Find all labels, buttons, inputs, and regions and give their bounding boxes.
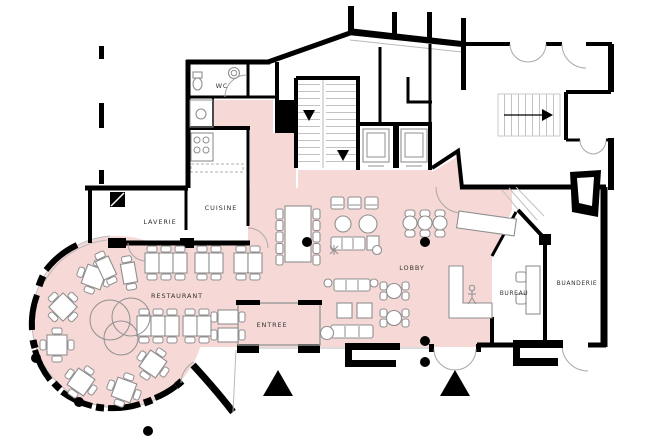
label-buanderie: BUANDERIE xyxy=(557,280,598,287)
top-door-swing xyxy=(562,44,586,68)
column-dot xyxy=(302,237,312,247)
zone-elevator-hall xyxy=(298,170,432,188)
main-staircase xyxy=(296,78,360,168)
elevators xyxy=(358,124,432,170)
floor-plan-drawing: WC LAVERIE CUISINE RESTAURANT ENTREE LOB… xyxy=(0,0,650,445)
floor-plan-canvas: WC LAVERIE CUISINE RESTAURANT ENTREE LOB… xyxy=(0,0,650,445)
wall-right-edge xyxy=(608,138,614,190)
chimney-pier xyxy=(110,192,125,207)
column-dot xyxy=(420,336,430,346)
top-door-swing xyxy=(510,44,528,62)
vent-enclosure xyxy=(345,343,400,367)
label-restaurant: RESTAURANT xyxy=(151,292,203,300)
vent-enclosure xyxy=(513,340,563,366)
utility-room xyxy=(190,100,213,127)
wall-stub xyxy=(392,12,397,34)
top-door-swing xyxy=(528,44,546,62)
label-bureau: BUREAU xyxy=(500,290,529,297)
elevator-car xyxy=(363,129,389,166)
wall-right-edge xyxy=(608,44,614,92)
right-door-swing xyxy=(580,140,594,154)
banquet-table xyxy=(276,206,320,265)
label-wc: WC xyxy=(216,82,229,90)
column-dot xyxy=(420,357,430,367)
wall-stub xyxy=(427,12,432,38)
wall-pier xyxy=(108,238,126,248)
label-entree: ENTREE xyxy=(256,321,287,329)
right-door-swing xyxy=(594,140,606,154)
wall-stub xyxy=(461,18,466,90)
label-cuisine: CUISINE xyxy=(205,204,238,212)
label-lobby: LOBBY xyxy=(399,264,425,272)
entrance-triangle xyxy=(440,370,470,396)
column-dot xyxy=(143,426,153,436)
kitchen-fixtures xyxy=(191,133,243,172)
column-dot xyxy=(74,397,84,407)
zone-hall-left xyxy=(250,133,296,188)
label-laverie: LAVERIE xyxy=(143,218,176,226)
column-dot xyxy=(31,353,41,363)
duct-shaft xyxy=(570,170,601,217)
upper-right-staircase xyxy=(498,94,560,136)
round-tables-row xyxy=(403,210,447,237)
entrance-triangle xyxy=(263,370,293,396)
column-dot xyxy=(420,237,430,247)
boundary-dashes xyxy=(99,46,104,184)
elevator-car xyxy=(401,129,427,166)
entrance-double-door xyxy=(429,344,481,370)
entrance-markers xyxy=(263,370,470,396)
buanderie-door-swing xyxy=(562,345,588,371)
wall-stub xyxy=(348,6,354,30)
wall-pier xyxy=(539,234,551,245)
